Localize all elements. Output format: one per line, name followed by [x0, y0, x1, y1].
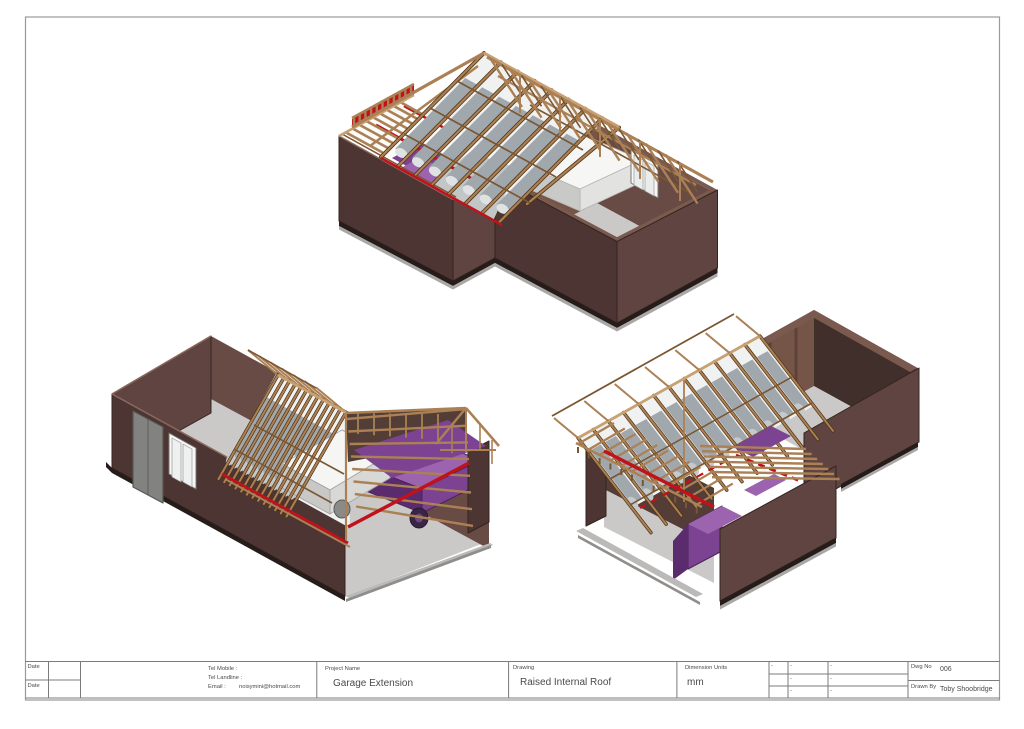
svg-text:Tel Mobile :: Tel Mobile : — [208, 666, 238, 672]
svg-text:Raised Internal Roof: Raised Internal Roof — [520, 677, 611, 688]
svg-text:-: - — [830, 688, 832, 694]
svg-text:-: - — [790, 663, 792, 669]
svg-text:-: - — [790, 676, 792, 682]
svg-text:Email :: Email : — [208, 684, 226, 690]
svg-text:006: 006 — [940, 666, 952, 673]
svg-text:Drawing: Drawing — [513, 665, 534, 671]
svg-text:Dimension Units: Dimension Units — [685, 665, 727, 671]
svg-text:Date: Date — [28, 683, 40, 689]
svg-text:Project Name: Project Name — [325, 666, 360, 672]
svg-text:mm: mm — [687, 677, 704, 688]
svg-text:Tel Landline :: Tel Landline : — [208, 675, 243, 681]
svg-text:Toby Shoobridge: Toby Shoobridge — [940, 686, 993, 693]
svg-text:noisymini@hotmail.com: noisymini@hotmail.com — [239, 684, 300, 690]
svg-text:Date: Date — [28, 664, 40, 670]
svg-text:Drawn By: Drawn By — [911, 684, 936, 690]
svg-text:-: - — [830, 676, 832, 682]
svg-text:-: - — [771, 663, 773, 669]
svg-text:Dwg No: Dwg No — [911, 664, 932, 670]
svg-text:-: - — [790, 688, 792, 694]
svg-text:Garage Extension: Garage Extension — [333, 678, 413, 689]
svg-text:-: - — [830, 663, 832, 669]
